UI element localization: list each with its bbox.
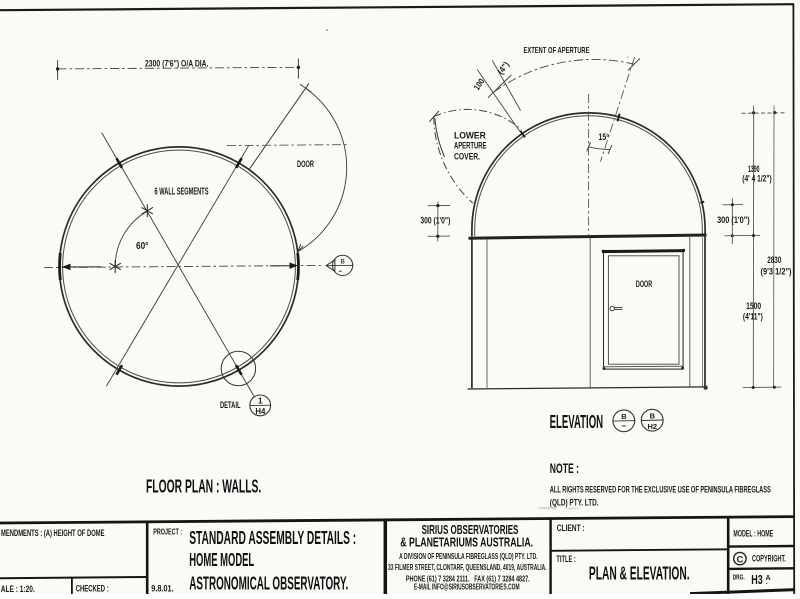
svg-text:CHECKED :: CHECKED : <box>76 584 109 595</box>
svg-text:1: 1 <box>258 396 263 406</box>
svg-text:(QLD) PTY. LTD.: (QLD) PTY. LTD. <box>550 497 599 507</box>
svg-text:A DIVISION OF PENINSULA FIBREG: A DIVISION OF PENINSULA FIBREGLASS (QLD)… <box>399 552 538 561</box>
svg-text:MODEL : HOME: MODEL : HOME <box>733 528 773 538</box>
svg-text:ALE : 1:20.: ALE : 1:20. <box>1 584 35 594</box>
svg-text:DRG.: DRG. <box>733 575 745 582</box>
svg-text:H3: H3 <box>751 573 763 587</box>
svg-text:STANDARD ASSEMBLY DETAILS :: STANDARD ASSEMBLY DETAILS : <box>189 528 356 548</box>
svg-text:15°: 15° <box>599 132 610 143</box>
svg-text:HOME MODEL: HOME MODEL <box>189 550 254 570</box>
svg-text:NOTE :: NOTE : <box>550 461 579 476</box>
svg-text:2830: 2830 <box>767 255 781 265</box>
svg-text:ELEVATION: ELEVATION <box>550 412 604 432</box>
svg-text:EXTENT OF APERTURE: EXTENT OF APERTURE <box>524 46 590 55</box>
svg-text:1500: 1500 <box>746 301 761 311</box>
svg-text:B: B <box>621 412 627 421</box>
svg-text:9.8.01.: 9.8.01. <box>151 584 173 594</box>
svg-text:A: A <box>766 575 771 582</box>
svg-text:APERTURE: APERTURE <box>454 141 486 152</box>
svg-text:FLOOR PLAN : WALLS.: FLOOR PLAN : WALLS. <box>146 475 261 496</box>
svg-text:300 (1'0"): 300 (1'0") <box>717 215 750 225</box>
svg-text:(9'3 1/2"): (9'3 1/2") <box>761 266 792 276</box>
svg-text:60°: 60° <box>136 240 149 252</box>
svg-text:2300 (7'6") O/A DIA.: 2300 (7'6") O/A DIA. <box>145 58 209 69</box>
svg-text:B: B <box>650 411 656 420</box>
svg-text:(4'11"): (4'11") <box>743 312 763 322</box>
svg-text:H2: H2 <box>648 422 658 431</box>
svg-text:& PLANETARIUMS AUSTRALIA.: & PLANETARIUMS AUSTRALIA. <box>400 535 533 549</box>
svg-text:H4: H4 <box>255 407 266 416</box>
svg-text:B: B <box>341 260 346 266</box>
svg-text:ALL RIGHTS RESERVED FOR THE EX: ALL RIGHTS RESERVED FOR THE EXCLUSIVE US… <box>550 484 771 494</box>
svg-text:PROJECT :: PROJECT : <box>153 526 182 536</box>
svg-text:ASTRONOMICAL OBSERVATORY.: ASTRONOMICAL OBSERVATORY. <box>189 573 348 593</box>
svg-text:(4' 4 1/2"): (4' 4 1/2") <box>742 174 772 184</box>
svg-text:6 WALL SEGMENTS: 6 WALL SEGMENTS <box>155 186 209 197</box>
svg-text:DOOR: DOOR <box>636 279 652 290</box>
svg-text:DETAIL: DETAIL <box>220 400 241 411</box>
svg-text:E-MAIL INFO@SIRIUSOBSERVATORIE: E-MAIL INFO@SIRIUSOBSERVATORIES.COM <box>414 581 520 591</box>
svg-text:PLAN & ELEVATION.: PLAN & ELEVATION. <box>589 563 690 583</box>
svg-text:DOOR: DOOR <box>297 159 314 170</box>
svg-text:C: C <box>736 554 743 565</box>
svg-text:33 FILMER STREET, CLONTARF, QU: 33 FILMER STREET, CLONTARF, QUEENSLAND, … <box>388 562 547 572</box>
svg-text:CLIENT :: CLIENT : <box>557 523 585 534</box>
svg-text:MENDMENTS : (A) HEIGHT OF DOME: MENDMENTS : (A) HEIGHT OF DOME <box>1 528 105 538</box>
svg-text:COVER.: COVER. <box>454 151 480 162</box>
svg-text:TITLE :: TITLE : <box>556 554 575 565</box>
svg-text:COPYRIGHT.: COPYRIGHT. <box>752 554 786 564</box>
svg-text:300 (1'0"): 300 (1'0") <box>420 216 450 226</box>
